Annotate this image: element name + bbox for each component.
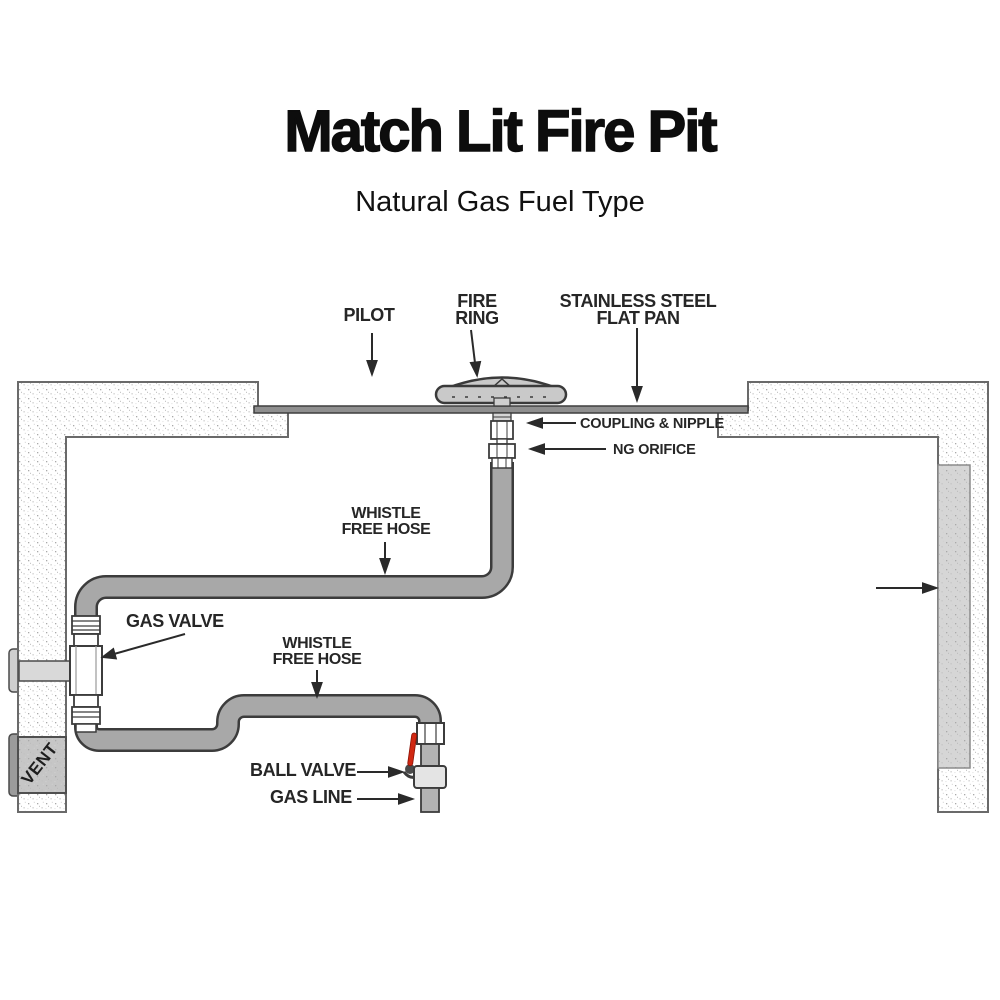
label-gas-line: GAS LINE [270,789,350,806]
fire-ring-arrow [471,330,480,375]
label-whistle-hose-lower-line1: WHISTLE [267,636,367,652]
right-wall-inner-panel [938,465,970,768]
flat-pan [254,406,748,413]
flat-pan-arrow [633,328,642,400]
gas-line-pipe [421,788,439,812]
ng-orifice [489,444,515,468]
label-whistle-hose-upper-line1: WHISTLE [336,506,436,522]
whistle-free-hose-lower [86,706,430,740]
label-coupling-nipple: COUPLING & NIPPLE [580,416,724,433]
whistle-hose-lower-arrow [313,670,322,696]
pilot-arrow [368,333,377,374]
whistle-free-hose-upper [86,462,502,622]
label-whistle-hose-upper-line2: FREE HOSE [336,522,436,538]
label-pilot: PILOT [338,307,400,324]
gas-valve [70,616,102,732]
right-wall-arrow [876,584,936,593]
whistle-hose-upper-arrow [381,542,390,572]
label-flat-pan: STAINLESS STEEL FLAT PAN [552,293,724,327]
gas-valve-stem [19,661,71,681]
label-fire-ring: FIRE RING [437,293,517,327]
fire-pit-diagram-page: Match Lit Fire Pit Natural Gas Fuel Type [0,0,1000,1000]
diagram-canvas [0,0,1000,1000]
label-whistle-hose-upper: WHISTLE FREE HOSE [336,506,436,537]
coupling-nipple-arrow [529,419,576,428]
label-fire-ring-line2: RING [437,310,517,327]
gas-line-arrow [357,795,412,804]
label-gas-valve: GAS VALVE [126,613,224,630]
ng-orifice-arrow [531,445,606,454]
label-ball-valve: BALL VALVE [250,762,350,779]
label-flat-pan-line2: FLAT PAN [552,310,724,327]
label-whistle-hose-lower-line2: FREE HOSE [267,652,367,668]
gas-valve-arrow [103,634,185,658]
label-ng-orifice: NG ORIFICE [613,442,696,459]
ball-valve-arrow [357,768,402,777]
coupling-and-nipple [491,398,513,444]
label-whistle-hose-lower: WHISTLE FREE HOSE [267,636,367,667]
